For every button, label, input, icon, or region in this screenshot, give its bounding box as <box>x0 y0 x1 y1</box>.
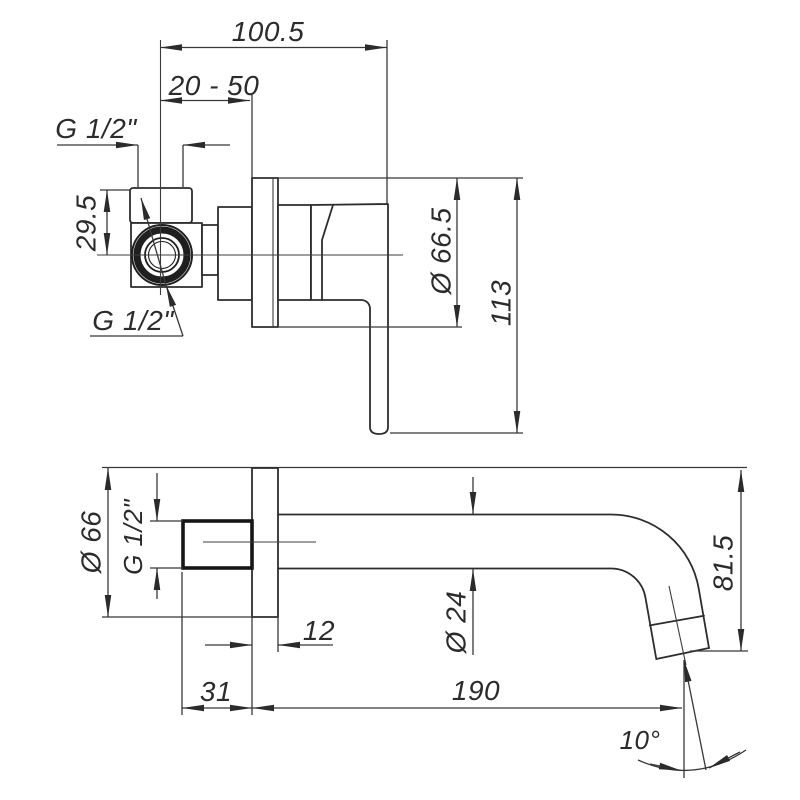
dim-label-thread-inlet: G 1/2" <box>118 498 148 575</box>
spout-tube <box>278 515 709 666</box>
spout-tip-axis <box>669 586 686 665</box>
dim-label-plate-diameter: Ø 66.5 <box>426 207 457 295</box>
dim-thread-inlet: G 1/2" <box>118 473 183 599</box>
dim-label-thread-front: G 1/2" <box>92 305 174 336</box>
dim-wall-depth: 31 <box>182 572 252 715</box>
dim-label-wall-depth: 31 <box>200 676 232 707</box>
dim-label-depth-range: 20 - 50 <box>168 70 260 101</box>
dim-stream-angle: 10° <box>620 660 746 778</box>
valve-body <box>130 188 252 300</box>
dim-label-total-projection: 100.5 <box>232 16 305 47</box>
wall-plate <box>252 178 278 327</box>
dim-label-spout-diameter: Ø 24 <box>441 591 472 655</box>
dim-spout-reach: 190 <box>252 675 682 708</box>
technical-drawing-page: 100.5 20 - 50 G 1/2" 29.5 G 1/2" <box>0 0 800 800</box>
inlet-nipple <box>183 521 252 568</box>
dim-vertical-offset: 29.5 <box>71 190 132 255</box>
dim-label-thread-top: G 1/2" <box>55 113 137 144</box>
dim-thread-top: G 1/2" <box>55 113 230 187</box>
spout-side-view: Ø 66 G 1/2" 12 31 190 <box>76 468 749 779</box>
faucet-dimension-drawing: 100.5 20 - 50 G 1/2" 29.5 G 1/2" <box>0 0 800 800</box>
dim-label-vertical-offset: 29.5 <box>71 195 102 253</box>
dim-label-total-height: 113 <box>486 280 517 326</box>
dim-label-flange-diameter: Ø 66 <box>76 511 107 575</box>
dim-label-stream-angle: 10° <box>620 725 661 755</box>
dim-label-spout-height: 81.5 <box>708 535 739 592</box>
dim-label-flange-thickness: 12 <box>303 615 335 646</box>
dim-depth-range: 20 - 50 <box>160 70 259 178</box>
dim-label-spout-reach: 190 <box>452 675 500 706</box>
dim-total-projection: 100.5 <box>160 16 387 204</box>
dim-flange-thickness: 12 <box>205 615 335 652</box>
valve-neck <box>202 225 218 275</box>
handle-adapter <box>278 205 311 300</box>
handle-lever <box>278 204 388 434</box>
dim-spout-height: 81.5 <box>690 470 748 651</box>
dim-spout-diameter: Ø 24 <box>441 477 474 655</box>
cartridge-housing <box>218 207 252 300</box>
mixer-side-view: 100.5 20 - 50 G 1/2" 29.5 G 1/2" <box>55 16 523 434</box>
